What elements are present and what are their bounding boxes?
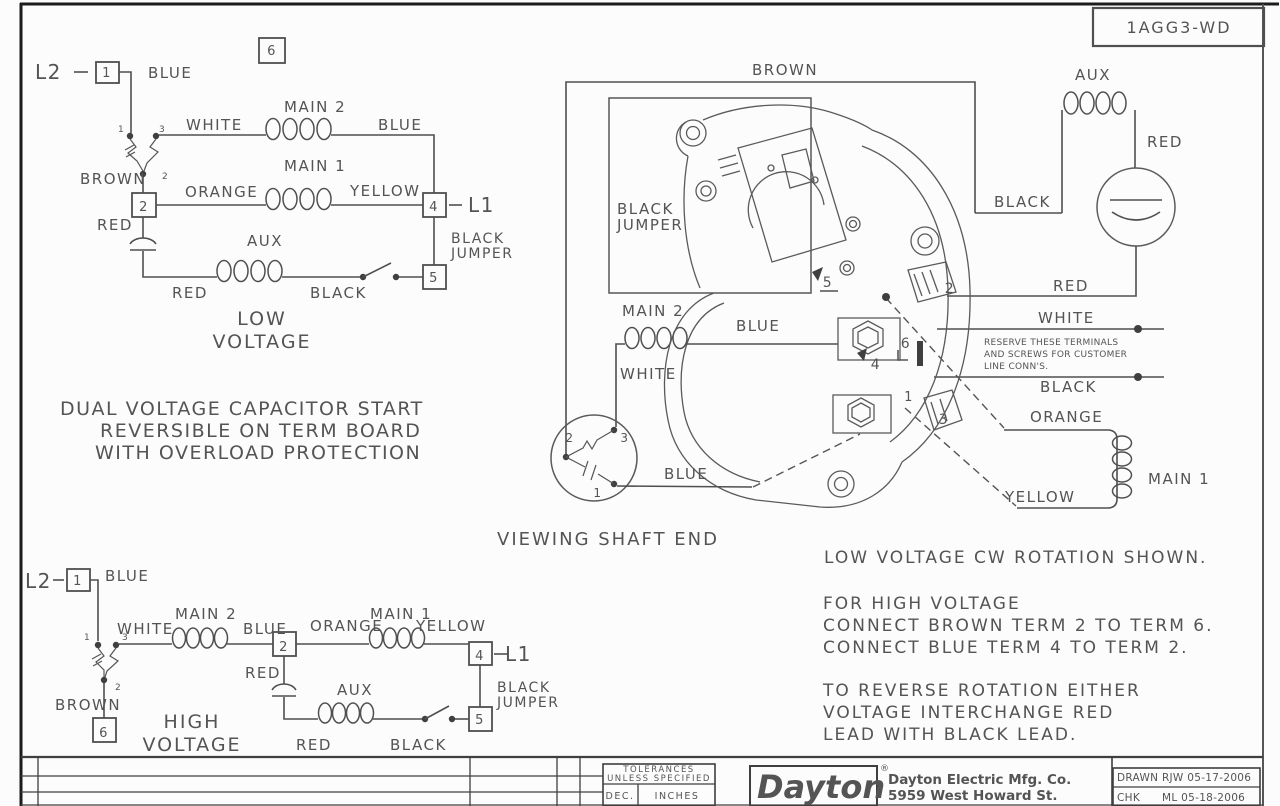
hv-terminal-6: 6 — [99, 726, 109, 741]
motor-orange: ORANGE — [1030, 408, 1103, 426]
switch-contact-1: 1 — [593, 486, 602, 500]
tb-company-1: Dayton Electric Mfg. Co. — [888, 772, 1071, 788]
motor-terminal-4: 4 — [871, 357, 881, 373]
caption-low-2: VOLTAGE — [212, 331, 311, 353]
hv-main2-coil — [173, 628, 228, 648]
description-3: WITH OVERLOAD PROTECTION — [95, 442, 421, 464]
lv-l2: L2 — [35, 60, 62, 84]
note-rotation: LOW VOLTAGE CW ROTATION SHOWN. — [824, 548, 1207, 568]
hv-red-bottom: RED — [296, 736, 332, 754]
lv-brown: BROWN — [80, 170, 146, 188]
tb-drawn: DRAWN RJW 05-17-2006 — [1117, 772, 1251, 784]
note-hv-2: CONNECT BROWN TERM 2 TO TERM 6. — [823, 616, 1214, 636]
motor-view — [551, 82, 1175, 508]
lv-black-jumper-1: BLACK — [451, 231, 505, 247]
drawing-number-label: 1AGG3-WD — [1126, 18, 1231, 37]
motor-red-right: RED — [1147, 133, 1183, 151]
lv-capacitor — [130, 238, 156, 244]
hv-terminal-2: 2 — [279, 640, 289, 655]
revision-table — [21, 757, 603, 806]
motor-black-jumper-2: JUMPER — [616, 216, 683, 234]
motor-main2-coil — [625, 328, 687, 349]
wiring-diagram: L21BLUE613WHITEMAIN 2BLUE2BROWN2ORANGEMA… — [0, 0, 1280, 806]
motor-blue-bottom: BLUE — [664, 465, 708, 483]
motor-aux-coil — [1064, 92, 1126, 114]
motor-white-line: WHITE — [1038, 309, 1095, 327]
motor-white: WHITE — [620, 365, 677, 383]
reserve-note-2: AND SCREWS FOR CUSTOMER — [984, 350, 1127, 360]
hv-contact-1: 1 — [84, 633, 91, 643]
tb-inches: INCHES — [655, 791, 700, 802]
tb-company-2: 5959 West Howard St. — [888, 788, 1058, 804]
lv-main1-coil — [266, 189, 331, 210]
lv-red-cap: RED — [97, 216, 133, 234]
diagram-labels: L21BLUE613WHITEMAIN 2BLUE2BROWN2ORANGEMA… — [25, 18, 1251, 806]
motor-black-aux: BLACK — [994, 193, 1051, 211]
motor-aux: AUX — [1075, 66, 1111, 84]
note-reverse-3: LEAD WITH BLACK LEAD. — [823, 725, 1077, 745]
lv-aux: AUX — [247, 232, 283, 250]
description-1: DUAL VOLTAGE CAPACITOR START — [60, 398, 424, 420]
hv-white: WHITE — [117, 620, 174, 638]
lv-terminal-2: 2 — [139, 200, 149, 215]
lv-aux-coil — [217, 261, 282, 282]
hv-black-jumper-1: BLACK — [497, 680, 551, 696]
high-voltage-circuit — [53, 569, 508, 742]
lv-contact-3: 3 — [159, 125, 166, 135]
black-jumper-zone — [609, 98, 811, 293]
caption-high-2: VOLTAGE — [142, 734, 241, 756]
motor-main2: MAIN 2 — [622, 302, 684, 320]
lv-main2: MAIN 2 — [284, 98, 346, 116]
caption-low-1: LOW — [237, 308, 287, 330]
motor-brown: BROWN — [752, 61, 818, 79]
hv-terminal-4: 4 — [475, 649, 485, 664]
lv-main1: MAIN 1 — [284, 157, 346, 175]
lv-start-switch — [363, 263, 391, 277]
hv-yellow: YELLOW — [415, 617, 486, 635]
note-reverse-2: VOLTAGE INTERCHANGE RED — [823, 703, 1114, 723]
hv-main2: MAIN 2 — [175, 605, 237, 623]
motor-terminal-6: 6 — [901, 336, 911, 352]
lv-contact-2: 2 — [162, 172, 169, 182]
motor-red-wire: RED — [1053, 277, 1089, 295]
lv-blue-mid: BLUE — [378, 116, 422, 134]
lv-blue-top: BLUE — [148, 64, 192, 82]
tb-chk-value: ML 05-18-2006 — [1162, 792, 1245, 804]
note-hv-1: FOR HIGH VOLTAGE — [823, 594, 1021, 614]
tb-logo: Dayton — [757, 768, 885, 806]
hv-l1: L1 — [505, 642, 532, 666]
lv-white: WHITE — [186, 116, 243, 134]
lv-black-bottom: BLACK — [310, 284, 367, 302]
motor-yellow: YELLOW — [1004, 488, 1075, 506]
motor-blue-top: BLUE — [736, 317, 780, 335]
switch-contact-3: 3 — [620, 431, 629, 445]
lv-terminal-6-label: 6 — [267, 44, 277, 59]
switch-contact-2: 2 — [565, 431, 574, 445]
hv-blue-top: BLUE — [105, 567, 149, 585]
hv-blue-mid: BLUE — [243, 620, 287, 638]
viewing-shaft-end: VIEWING SHAFT END — [497, 529, 719, 550]
hv-aux: AUX — [337, 681, 373, 699]
motor-main1-coil — [1113, 436, 1132, 498]
lv-main2-coil — [266, 119, 331, 140]
tb-tolerances-2: UNLESS SPECIFIED — [607, 774, 711, 784]
lv-yellow: YELLOW — [349, 182, 420, 200]
schematic-page: L21BLUE613WHITEMAIN 2BLUE2BROWN2ORANGEMA… — [0, 0, 1280, 806]
hv-contact-2: 2 — [115, 683, 122, 693]
motor-terminal-5: 5 — [823, 275, 833, 291]
note-reverse-1: TO REVERSE ROTATION EITHER — [822, 681, 1141, 701]
lv-orange: ORANGE — [185, 183, 258, 201]
motor-terminal-2: 2 — [945, 281, 955, 297]
hv-start-switch — [425, 706, 449, 719]
hv-aux-coil — [319, 703, 374, 723]
hv-l2: L2 — [25, 569, 52, 593]
hv-capacitor — [272, 684, 296, 690]
motor-body — [664, 105, 970, 507]
note-hv-3: CONNECT BLUE TERM 4 TO TERM 2. — [823, 638, 1189, 658]
lv-l1: L1 — [468, 193, 495, 217]
description-2: REVERSIBLE ON TERM BOARD — [100, 420, 421, 442]
lv-contact-1: 1 — [118, 125, 125, 135]
motor-black-line: BLACK — [1040, 378, 1097, 396]
lv-red-bottom: RED — [172, 284, 208, 302]
hv-red-cap: RED — [245, 664, 281, 682]
run-capacitor — [1097, 168, 1175, 246]
tb-dec: DEC. — [606, 791, 635, 802]
hv-terminal-1: 1 — [73, 574, 83, 589]
motor-terminal-1: 1 — [904, 390, 914, 405]
hv-black-bottom: BLACK — [390, 736, 447, 754]
motor-terminal-3: 3 — [939, 412, 949, 428]
reserve-note-1: RESERVE THESE TERMINALS — [984, 338, 1118, 348]
lv-black-jumper-2: JUMPER — [450, 246, 513, 262]
caption-high-1: HIGH — [164, 711, 221, 733]
lv-terminal-4: 4 — [429, 200, 439, 215]
tb-chk: CHK — [1117, 792, 1141, 804]
reserve-note-3: LINE CONN'S. — [984, 362, 1048, 372]
motor-main1: MAIN 1 — [1148, 470, 1210, 488]
hv-black-jumper-2: JUMPER — [496, 695, 559, 711]
low-voltage-circuit — [74, 38, 462, 289]
lv-terminal-1: 1 — [102, 66, 112, 81]
hv-terminal-5: 5 — [475, 713, 485, 728]
lv-terminal-5: 5 — [429, 271, 439, 286]
hv-brown: BROWN — [55, 696, 121, 714]
